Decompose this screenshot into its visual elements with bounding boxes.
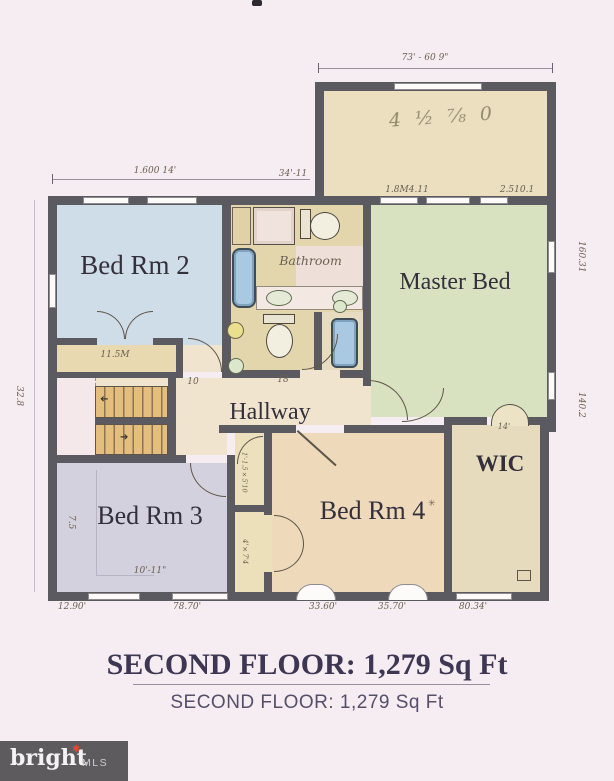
sink-round-green-top (333, 300, 347, 313)
dim-bottom-4: 35.70' (367, 603, 417, 612)
dim-left-side: 32.8 (14, 378, 23, 414)
note-hall: 18 (274, 376, 292, 385)
stair-corridor (57, 378, 96, 455)
floor-subtitle: SECOND FLOOR: 1,279 Sq Ft (0, 692, 614, 714)
window-master-top-3 (480, 197, 508, 204)
wall-bed3-top (48, 455, 186, 463)
dim-bed2-closet: 11.5M (85, 351, 145, 360)
shower (253, 207, 295, 245)
wall-hall-top (222, 370, 371, 378)
label-master: Master Bed (395, 270, 515, 294)
dim-top-center: 34'-11 (258, 170, 328, 179)
stairs-lower-run (95, 424, 168, 455)
window-bed3-bottom-1 (88, 593, 140, 600)
window-bed2-left (49, 274, 56, 308)
bath-door-gap (300, 370, 340, 378)
stair-down-arrow-icon: ➔ (120, 432, 128, 443)
wall-bed2-closet-top-a (57, 338, 97, 345)
bed4-closet (235, 512, 264, 592)
window-master-top-1 (380, 197, 418, 204)
dim-right-lower: 140.2 (576, 383, 585, 427)
bed3-inner-guide-h (96, 575, 154, 576)
note-stairs: 10 (184, 378, 202, 387)
wall-master-left (363, 196, 371, 386)
dim-line-left (34, 200, 35, 592)
window-bed2-top-1 (83, 197, 129, 204)
label-wic: WIC (465, 452, 535, 475)
bathtub-1 (232, 248, 256, 308)
stair-up-arrow-icon: ➔ (100, 394, 108, 405)
wall-bed4-top-b (344, 425, 452, 433)
plant-mark-icon: ✳ (428, 498, 436, 509)
dim-hall-closet: 1'-1.5×5'10 (241, 444, 248, 500)
label-bed3: Bed Rm 3 (90, 503, 210, 529)
dim-bed2-top: 1.600 14' (105, 167, 205, 176)
toilet-tank-2 (263, 314, 295, 324)
dim-bed3-height: 7.5 (66, 505, 75, 539)
dim-line-bed2-top (52, 179, 310, 180)
wall-bed4-right (444, 425, 452, 601)
wall-bed3-right (227, 455, 235, 601)
sink-1 (266, 290, 292, 306)
brightmls-watermark: bright ✱ MLS (0, 741, 128, 781)
watermark-star-icon: ✱ (72, 744, 80, 755)
label-bed4: Bed Rm 4 (310, 498, 435, 524)
wall-wic-top-a (444, 417, 487, 425)
wall-bed4-top-a (219, 425, 296, 433)
window-master-right-2 (548, 372, 555, 400)
dim-bottom-2: 78.70' (162, 603, 212, 612)
watermark-suffix: MLS (82, 757, 108, 769)
dim-tick (52, 174, 53, 184)
dim-right-upper: 160.31 (576, 232, 585, 282)
dim-bottom-1: 12.90' (47, 603, 97, 612)
window-bed3-bottom-2 (172, 593, 228, 600)
wall-stairs-right (168, 378, 176, 455)
sink-round-green-low (228, 358, 244, 374)
bed3-inner-guide-v (96, 470, 97, 575)
dim-master-top-right: 2.510.1 (487, 186, 547, 195)
title-divider (133, 684, 490, 685)
window-bed2-top-2 (147, 197, 197, 204)
scan-artifact (252, 0, 262, 6)
window-master-right-1 (548, 241, 555, 273)
label-hallway: Hallway (215, 400, 325, 424)
wall-bonus-right (547, 82, 556, 196)
dim-wic-top: 14' (492, 423, 516, 431)
sink-round-yellow (227, 322, 244, 339)
dim-bonus-top: 73' - 60 9" (370, 54, 480, 63)
room-master (371, 205, 547, 417)
wall-bed4-left (264, 425, 272, 601)
dim-bottom-5: 80.34' (448, 603, 498, 612)
wic-floor-vent (517, 570, 531, 581)
toilet-bowl-2 (266, 324, 293, 358)
floorplan-page: { "plan": { "rooms": { "bed2": "Bed Rm 2… (0, 0, 614, 781)
window-bonus-top (394, 83, 482, 90)
wall-closet-divider (235, 505, 264, 512)
dim-bottom-3: 33.60' (298, 603, 348, 612)
floor-title: SECOND FLOOR: 1,279 Sq Ft (0, 648, 614, 682)
wall-closet-bottom (48, 372, 183, 378)
dim-tick (318, 63, 319, 73)
wall-outer-right-wic (540, 425, 549, 601)
toilet-bowl-1 (310, 212, 340, 240)
wall-wic-top-b (527, 417, 549, 425)
wall-outer-left (48, 196, 57, 601)
label-bathroom: Bathroom (268, 255, 353, 268)
dim-tick (552, 63, 553, 73)
wall-bed2-right (222, 196, 231, 378)
dim-line-bonus-top (318, 68, 553, 69)
label-bed2: Bed Rm 2 (60, 252, 210, 279)
bed4-french-door-gap (264, 515, 272, 572)
window-wic-bottom (456, 593, 512, 600)
window-master-top-2 (426, 197, 470, 204)
dim-master-top-left: 1.8M4.11 (372, 186, 442, 195)
wall-bonus-left (315, 82, 324, 205)
linen-closet (232, 207, 251, 245)
dim-bed4-closet: 4'×7'4 (241, 526, 248, 578)
